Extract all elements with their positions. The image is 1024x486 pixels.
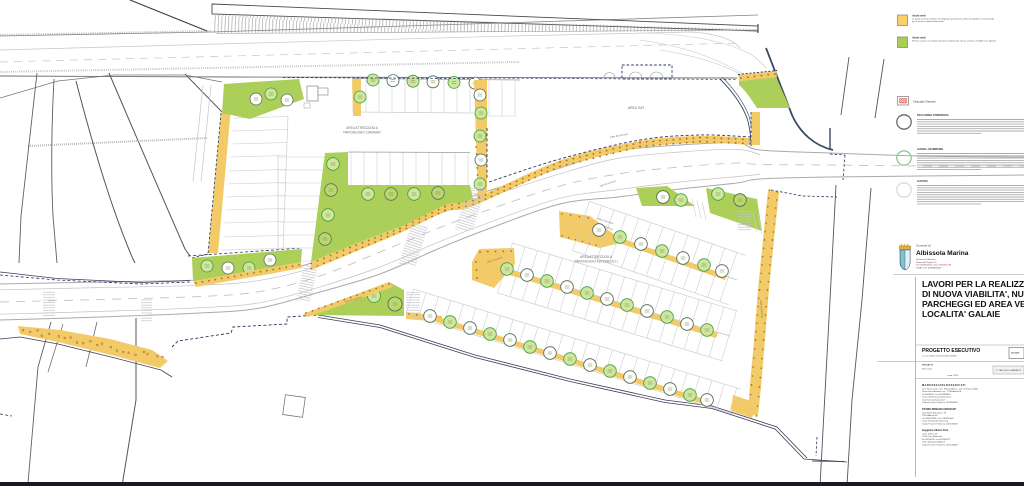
svg-text:Codice Fiscale e Partita Iva:: Codice Fiscale e Partita Iva: 0103853009…	[922, 401, 958, 404]
svg-text:per la messa a dimora delle pi: per la messa a dimora delle piante	[912, 20, 945, 23]
svg-text:PARCHEGGIO CARAVAN: PARCHEGGIO CARAVAN	[343, 131, 381, 135]
svg-text:AREA ATTREZZATA A: AREA ATTREZZATA A	[346, 126, 379, 130]
svg-text:PAULOWNIA TOMENTOSA: PAULOWNIA TOMENTOSA	[917, 114, 949, 117]
svg-text:Corso Tardera, 46: Corso Tardera, 46	[922, 433, 937, 436]
svg-text:Tel 019/48562 - Fax 019/485680: Tel 019/48562 - Fax 019/4856805	[922, 394, 950, 396]
svg-text:email: info@marcociarloassocia: email: info@marcociarloassociati.it	[922, 396, 952, 399]
svg-text:ALBIZIA JULIBRISSIN: ALBIZIA JULIBRISSIN	[917, 148, 943, 151]
svg-text:PROGETTO ESECUTIVO: PROGETTO ESECUTIVO	[922, 348, 980, 354]
svg-text:e-mail: info@studioromano.org: e-mail: info@studioromano.org	[922, 420, 948, 423]
svg-text:Albissola Marina: Albissola Marina	[916, 250, 969, 257]
svg-text:scala 1:200: scala 1:200	[947, 375, 959, 377]
svg-text:Semina a prato con sementi spe: Semina a prato con sementi specifici res…	[912, 40, 997, 43]
svg-text:PARCHEGGIO AUTO/BICICLI: PARCHEGGIO AUTO/BICICLI	[575, 260, 618, 264]
svg-text:Ingegnere Alberto Pera: Ingegnere Alberto Pera	[922, 429, 949, 432]
svg-text:STUDIO ROMANO ASSOCIATI: STUDIO ROMANO ASSOCIATI	[922, 408, 956, 411]
svg-text:tel 019/504236 - fax 019/50923: tel 019/504236 - fax 019/5092375	[922, 438, 950, 441]
svg-text:PARCHEGGI ED AREA VERDE: PARCHEGGI ED AREA VERDE	[922, 299, 1024, 309]
svg-text:Tel. 0182/555036 - Fax. 0182/5: Tel. 0182/555036 - Fax. 0182/555060	[922, 418, 953, 420]
svg-text:PROGETTO: PROGETTO	[922, 365, 934, 367]
svg-text:Provincia di Savona: Provincia di Savona	[916, 258, 936, 261]
svg-text:MARCOSCIARLOASSOCIATI: MARCOSCIARLOASSOCIATI	[922, 383, 966, 387]
svg-text:Viale Martiri della Liberta, 3: Viale Martiri della Liberta, 38	[922, 412, 946, 415]
svg-text:Piazza San Sebastiano, via - 1: Piazza San Sebastiano, via - 17100 Albis…	[922, 390, 962, 393]
svg-text:17014 Cairo Montenotte: 17014 Cairo Montenotte	[922, 435, 942, 438]
svg-text:www.marcociarloassociati.it: www.marcociarloassociati.it	[922, 398, 946, 401]
svg-text:Codice Fiscale e Partita Iva:: Codice Fiscale e Partita Iva: 0123734009…	[922, 443, 958, 446]
svg-text:Piazza del Popolo 12: Piazza del Popolo 12	[916, 262, 937, 264]
svg-text:1° TAVOLA DI VARIANTE: 1° TAVOLA DI VARIANTE	[996, 369, 1022, 372]
svg-text:AREA SAT: AREA SAT	[628, 106, 644, 110]
svg-text:ai sensi dell'art. 23 del D.LG: ai sensi dell'art. 23 del D.LGS. 50/2016	[922, 355, 958, 358]
svg-text:email: albertopera@libero.it: email: albertopera@libero.it	[922, 441, 946, 444]
svg-text:DI NUOVA VIABILITA', NUOVI: DI NUOVA VIABILITA', NUOVI	[922, 289, 1024, 299]
svg-text:P.IVA e C.F. 00334650092: P.IVA e C.F. 00334650092	[916, 266, 942, 269]
svg-text:AUCUBA: AUCUBA	[917, 180, 928, 183]
svg-text:Aiuole verdi: Aiuole verdi	[911, 15, 926, 18]
svg-text:Codice Fiscale e Partita Iva:: Codice Fiscale e Partita Iva: 0107526009…	[922, 422, 958, 425]
svg-text:AREA ATTREZZATA A: AREA ATTREZZATA A	[580, 255, 613, 259]
svg-text:Cespuglio Oleandro: Cespuglio Oleandro	[913, 100, 936, 104]
svg-text:Tel 019/4002520 - Fax 019/4002: Tel 019/4002520 - Fax 019/4002138	[916, 265, 952, 267]
svg-text:LAVORI PER LA REALIZZAZIONE: LAVORI PER LA REALIZZAZIONE	[922, 279, 1024, 289]
svg-text:Aiuole verdi: Aiuole verdi	[911, 37, 926, 40]
svg-text:proget: proget	[1011, 351, 1020, 355]
svg-text:17019 Albenga SV: 17019 Albenga SV	[922, 414, 938, 417]
svg-text:Comune di: Comune di	[916, 244, 931, 248]
svg-text:Rove verdi: Rove verdi	[922, 369, 932, 371]
svg-text:arch. Marco Ciarlo - arch. Fab: arch. Marco Ciarlo - arch. Fabrizio Mela…	[922, 388, 978, 391]
svg-text:LOCALITA' GALAIE: LOCALITA' GALAIE	[922, 309, 1000, 319]
